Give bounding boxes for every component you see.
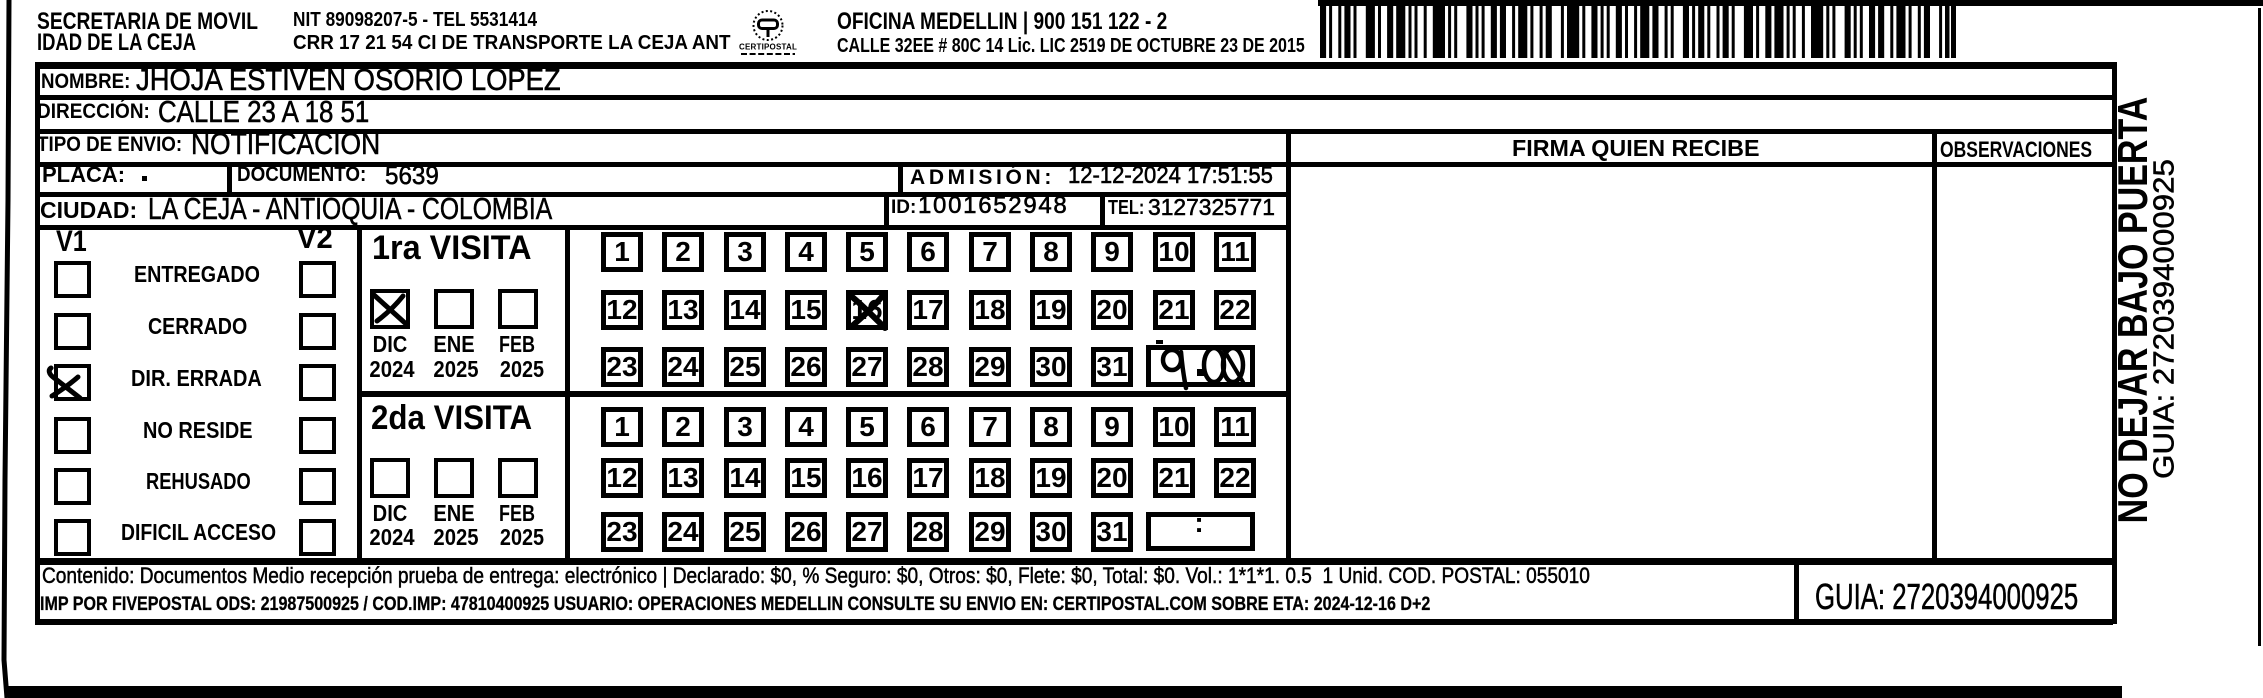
svg-text:CERTIPOSTAL: CERTIPOSTAL xyxy=(739,43,797,52)
